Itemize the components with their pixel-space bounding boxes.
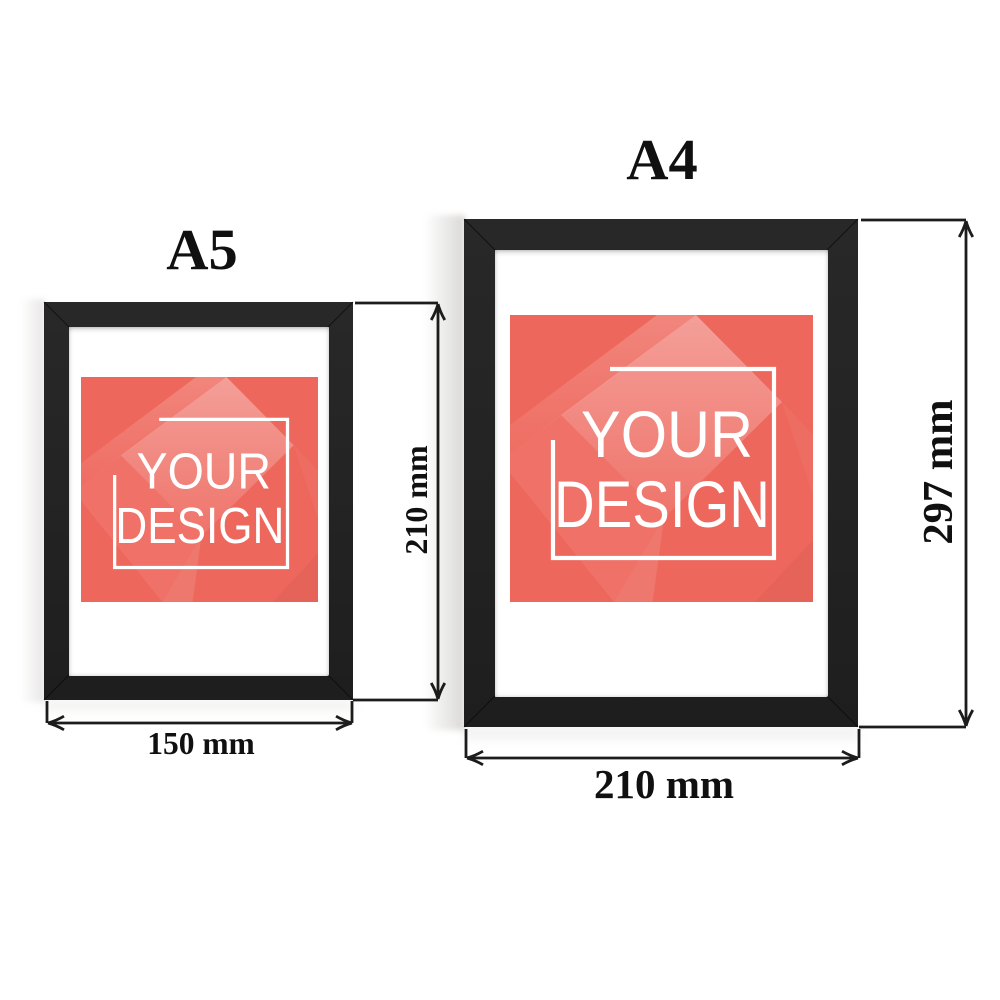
svg-text:A4: A4 xyxy=(626,127,698,192)
svg-text:A5: A5 xyxy=(166,217,238,282)
svg-text:150 mm: 150 mm xyxy=(147,726,255,761)
svg-text:210 mm: 210 mm xyxy=(594,761,734,807)
svg-text:297 mm: 297 mm xyxy=(915,399,962,544)
svg-text:210 mm: 210 mm xyxy=(398,445,434,555)
